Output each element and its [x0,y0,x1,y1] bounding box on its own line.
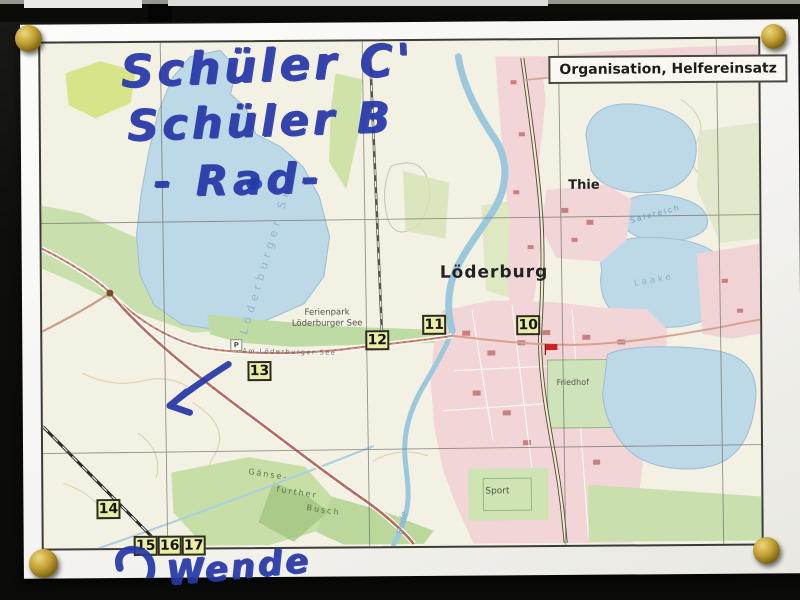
north-east-lake [586,103,697,193]
map-title-box: Organisation, Helfereinsatz [548,54,788,84]
road-junction-dot [106,290,113,297]
waypoint-marker-11: 11 [422,315,446,335]
south-east-green-band [588,484,761,542]
waypoint-marker-10: 10 [516,315,540,335]
paper-edge-above-right [168,0,548,6]
town-label-loederburg: Löderburg [440,262,549,283]
pin-icon-bottom-right [753,537,780,564]
handwriting-schueler-b: Schüler B [126,93,394,152]
pin-icon-top-right [761,24,786,49]
village-label-thie: Thie [568,178,600,193]
map-sheet-paper: Organisation, Helfereinsatz Löderburg Th… [20,19,800,578]
handwriting-rad: - Rad- [153,153,324,206]
sports-label: Sport [485,486,509,496]
photo-of-pinned-map: Organisation, Helfereinsatz Löderburg Th… [0,0,800,600]
map-title-text: Organisation, Helfereinsatz [559,60,777,78]
board-gap [148,4,172,22]
waypoint-marker-15: 15 [134,536,158,556]
forest-extension [315,496,433,545]
waypoint-marker-14: 14 [96,499,120,519]
ferienpark-line1: Ferienpark [272,307,382,319]
parking-icon: P [230,339,242,351]
waypoint-marker-12: 12 [365,330,389,350]
ferienpark-line2: Löderburger See [272,319,382,331]
ferienpark-label: Ferienpark Löderburger See [272,307,382,331]
west-road [42,293,110,331]
paper-edge-above-left [24,0,142,8]
waypoint-marker-13: 13 [247,361,271,381]
pin-icon-bottom-left [29,549,58,578]
pin-icon-top-left [15,25,42,52]
cemetery-label: Friedhof [557,378,589,387]
